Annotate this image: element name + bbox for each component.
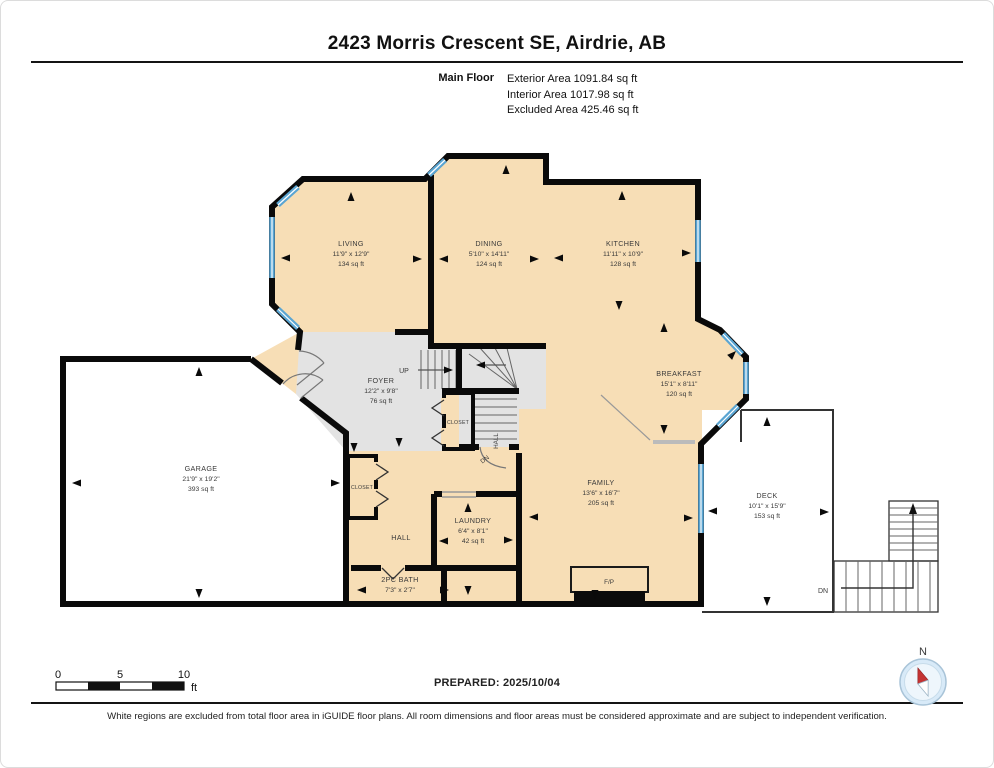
deck-stairs bbox=[834, 501, 938, 612]
dining-area: 124 sq ft bbox=[476, 261, 502, 268]
stairs-closet-label: CLOSET bbox=[447, 420, 470, 426]
kitchen-dims: 11'11" x 10'9" bbox=[603, 251, 644, 258]
deck-area: 153 sq ft bbox=[754, 513, 780, 520]
breakfast-name: BREAKFAST bbox=[656, 369, 702, 378]
scale-unit: ft bbox=[191, 682, 197, 694]
compass-north-label: N bbox=[919, 646, 927, 658]
garage-name: GARAGE bbox=[185, 464, 218, 473]
compass-rose: N bbox=[900, 646, 946, 705]
floor-plan-drawing: DN bbox=[1, 1, 994, 768]
bath-dims: 7'3" x 2'7" bbox=[385, 587, 415, 594]
foyer-dims: 12'2" x 9'8" bbox=[364, 388, 398, 395]
scale-tick-0: 0 bbox=[55, 669, 61, 681]
garage-area: 393 sq ft bbox=[188, 486, 214, 493]
garage-dims: 21'9" x 19'2" bbox=[182, 476, 220, 483]
dining-name: DINING bbox=[475, 239, 502, 248]
deck-area bbox=[702, 410, 833, 612]
kitchen-name: KITCHEN bbox=[606, 239, 640, 248]
living-dims: 11'9" x 12'9" bbox=[333, 251, 370, 258]
dining-dims: 5'10" x 14'11" bbox=[469, 251, 510, 258]
living-name: LIVING bbox=[338, 239, 364, 248]
deck-name: DECK bbox=[756, 491, 777, 500]
breakfast-area: 120 sq ft bbox=[666, 391, 692, 398]
family-dims: 13'6" x 16'7" bbox=[582, 490, 620, 497]
garage-closet-label: CLOSET bbox=[351, 485, 374, 491]
foyer-area: 76 sq ft bbox=[370, 398, 392, 405]
family-name: FAMILY bbox=[587, 478, 614, 487]
stairs-up-label: UP bbox=[399, 368, 409, 375]
floor-plan-page: 2423 Morris Crescent SE, Airdrie, AB Mai… bbox=[0, 0, 994, 768]
deck-dn-label: DN bbox=[818, 588, 828, 595]
foyer-name: FOYER bbox=[368, 376, 395, 385]
bath-name: 2PC BATH bbox=[381, 575, 418, 584]
scale-bar: 0 5 10 ft bbox=[55, 669, 197, 694]
family-area: 205 sq ft bbox=[588, 500, 614, 507]
breakfast-dims: 15'1" x 8'11" bbox=[661, 381, 698, 388]
laundry-area: 42 sq ft bbox=[462, 538, 484, 545]
laundry-name: LAUNDRY bbox=[455, 516, 492, 525]
hall-vertical-label: HALL bbox=[493, 433, 500, 449]
scale-tick-5: 5 bbox=[117, 669, 123, 681]
deck-dims: 10'1" x 15'9" bbox=[748, 503, 786, 510]
laundry-dims: 6'4" x 8'1" bbox=[458, 528, 488, 535]
fireplace-label: F/P bbox=[604, 579, 614, 586]
scale-tick-10: 10 bbox=[178, 669, 190, 681]
hall-label: HALL bbox=[391, 533, 410, 542]
kitchen-area: 128 sq ft bbox=[610, 261, 636, 268]
living-area: 134 sq ft bbox=[338, 261, 364, 268]
fireplace: F/P bbox=[571, 567, 648, 605]
